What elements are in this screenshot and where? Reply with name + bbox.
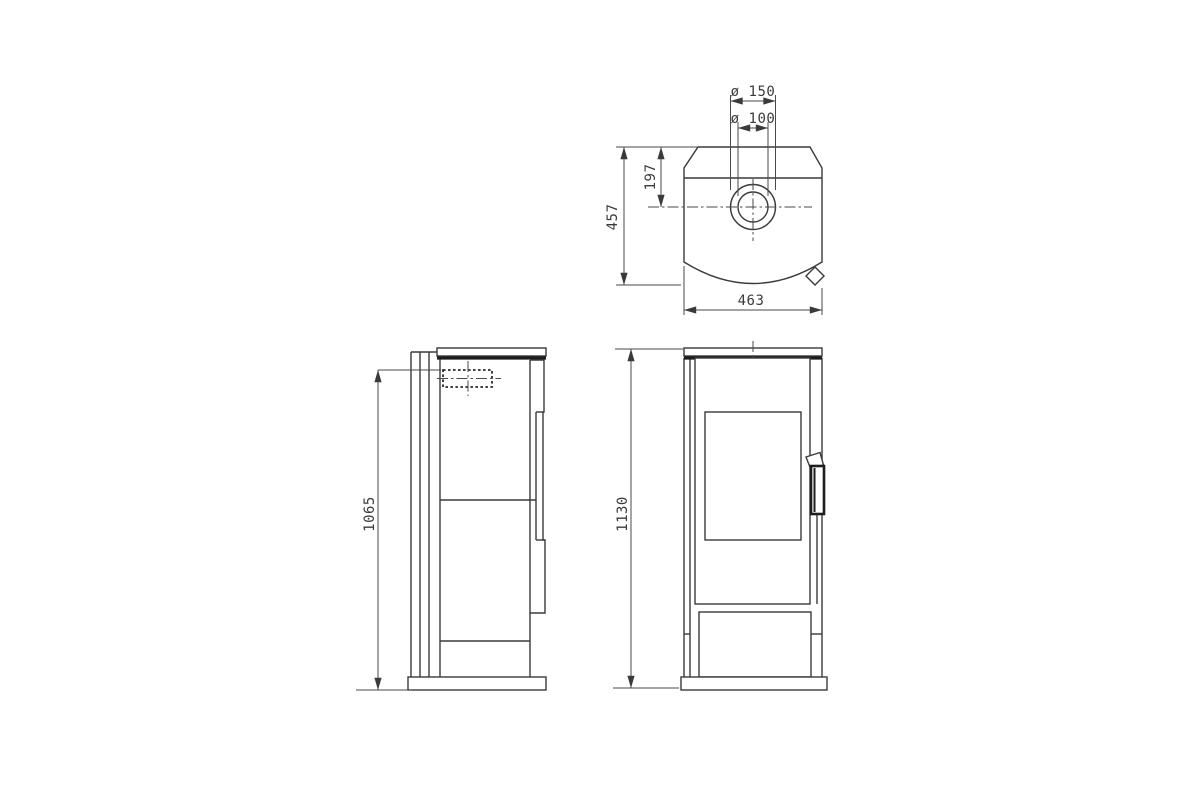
rear-flue-centerlines	[437, 361, 501, 396]
drawing-sheet: ø 150 ø 100 197 457 463	[0, 0, 1200, 800]
door-glass	[705, 412, 801, 540]
technical-drawing-canvas: ø 150 ø 100 197 457 463	[0, 0, 1200, 800]
dim-label-flue-inner-diameter: ø 100	[731, 111, 776, 127]
door-side-profile	[530, 360, 545, 613]
front-view: 1130	[613, 341, 827, 690]
dim-label-depth: 457	[605, 204, 621, 231]
front-base-plinth	[681, 677, 827, 690]
top-view: ø 150 ø 100 197 457 463	[605, 84, 824, 315]
dim-label-flue-outer-diameter: ø 150	[731, 84, 776, 100]
front-lower-panel	[699, 612, 811, 677]
dim-label-flue-offset: 197	[643, 164, 659, 191]
door-handle-grip	[811, 466, 824, 514]
side-base-plinth	[408, 677, 546, 690]
dim-label-flue-height: 1065	[362, 496, 378, 532]
side-view: 1065	[356, 348, 546, 690]
side-top-cap	[437, 348, 546, 356]
side-body	[440, 358, 536, 677]
rear-heat-shield	[411, 352, 437, 677]
dim-label-width: 463	[738, 293, 765, 309]
dim-label-overall-height: 1130	[615, 496, 631, 532]
